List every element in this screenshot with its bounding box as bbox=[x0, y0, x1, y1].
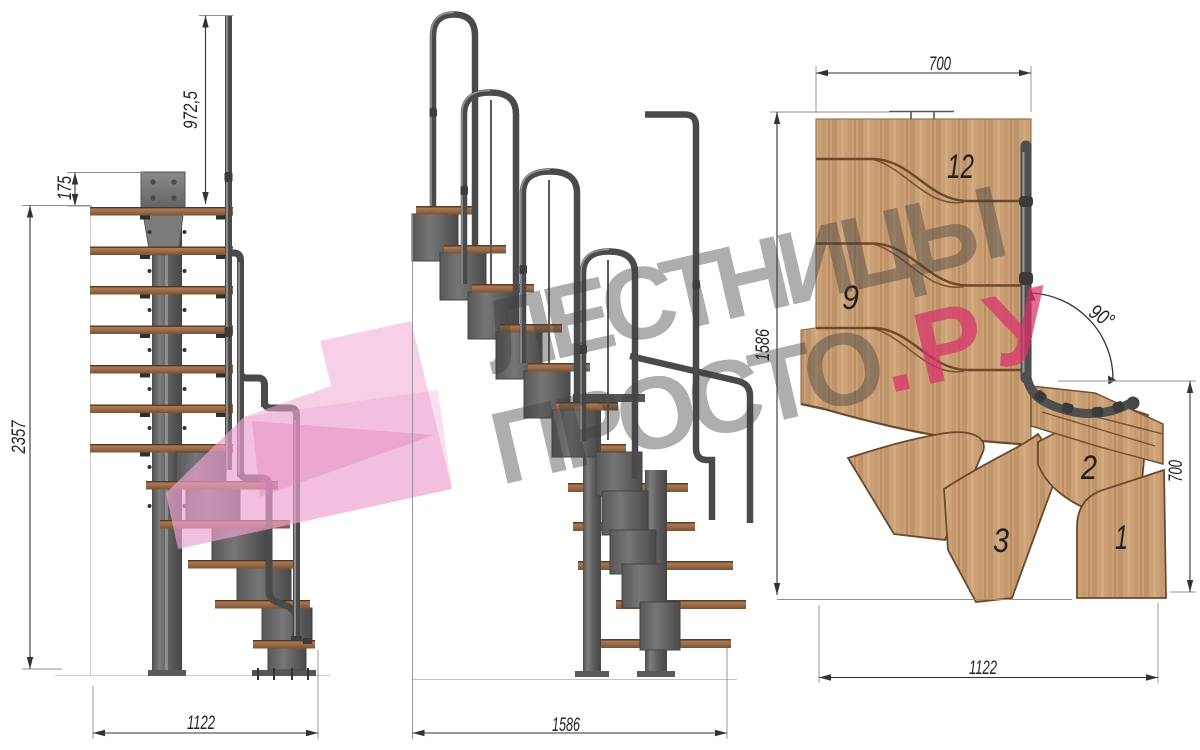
svg-text:175: 175 bbox=[55, 176, 76, 200]
svg-text:1586: 1586 bbox=[753, 329, 774, 361]
svg-text:1586: 1586 bbox=[552, 715, 580, 736]
svg-text:90°: 90° bbox=[1085, 300, 1118, 333]
svg-text:2357: 2357 bbox=[9, 419, 30, 454]
svg-text:1122: 1122 bbox=[969, 658, 997, 679]
svg-text:972,5: 972,5 bbox=[181, 91, 202, 129]
svg-text:700: 700 bbox=[929, 54, 951, 75]
svg-text:2: 2 bbox=[1080, 449, 1097, 487]
svg-text:1: 1 bbox=[1115, 519, 1128, 557]
svg-text:700: 700 bbox=[1166, 460, 1187, 482]
svg-text:1122: 1122 bbox=[187, 713, 215, 734]
svg-text:3: 3 bbox=[993, 522, 1009, 560]
